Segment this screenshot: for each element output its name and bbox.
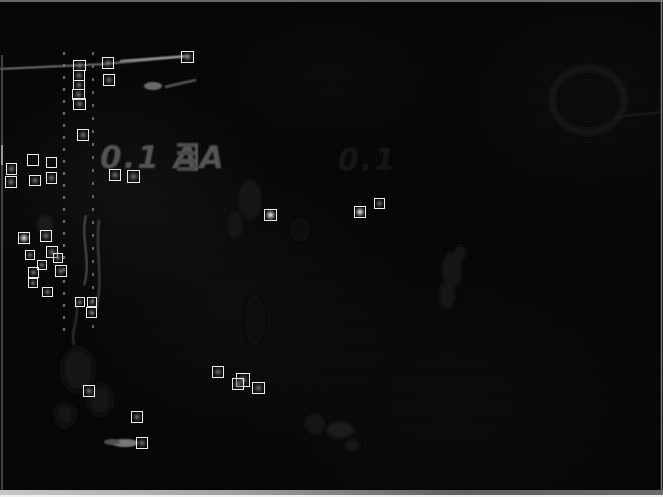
detection-box — [131, 411, 143, 423]
detection-box — [73, 98, 86, 110]
detection-box — [136, 437, 148, 449]
detection-box — [87, 297, 97, 307]
detection-box — [212, 366, 224, 378]
detection-box — [252, 382, 265, 394]
detection-box — [40, 230, 52, 242]
detection-box — [28, 278, 38, 288]
detection-box — [354, 206, 366, 218]
detection-overlay — [0, 0, 663, 497]
detection-box — [25, 250, 35, 260]
detection-box — [55, 265, 67, 277]
detection-box — [109, 169, 121, 181]
detection-box — [86, 307, 97, 318]
detection-box — [42, 287, 53, 297]
detection-box — [103, 74, 115, 86]
detection-box — [127, 170, 140, 183]
detection-box — [18, 232, 30, 244]
detection-box — [75, 297, 85, 307]
detection-box — [102, 57, 114, 69]
detection-box — [83, 385, 95, 397]
detection-box — [181, 51, 194, 63]
detection-box — [29, 175, 41, 186]
detection-box — [6, 163, 17, 175]
detection-box — [27, 154, 39, 166]
detection-box — [53, 253, 63, 263]
detection-box — [46, 172, 57, 184]
detection-box — [374, 198, 385, 209]
detection-box — [46, 157, 57, 168]
detection-box — [28, 267, 39, 278]
detection-box — [264, 209, 277, 221]
detection-box — [232, 378, 244, 390]
detection-box — [5, 176, 17, 188]
night-scene-detection-image: 0.1 AA 0.1 — [0, 0, 663, 497]
detection-box — [77, 129, 89, 141]
